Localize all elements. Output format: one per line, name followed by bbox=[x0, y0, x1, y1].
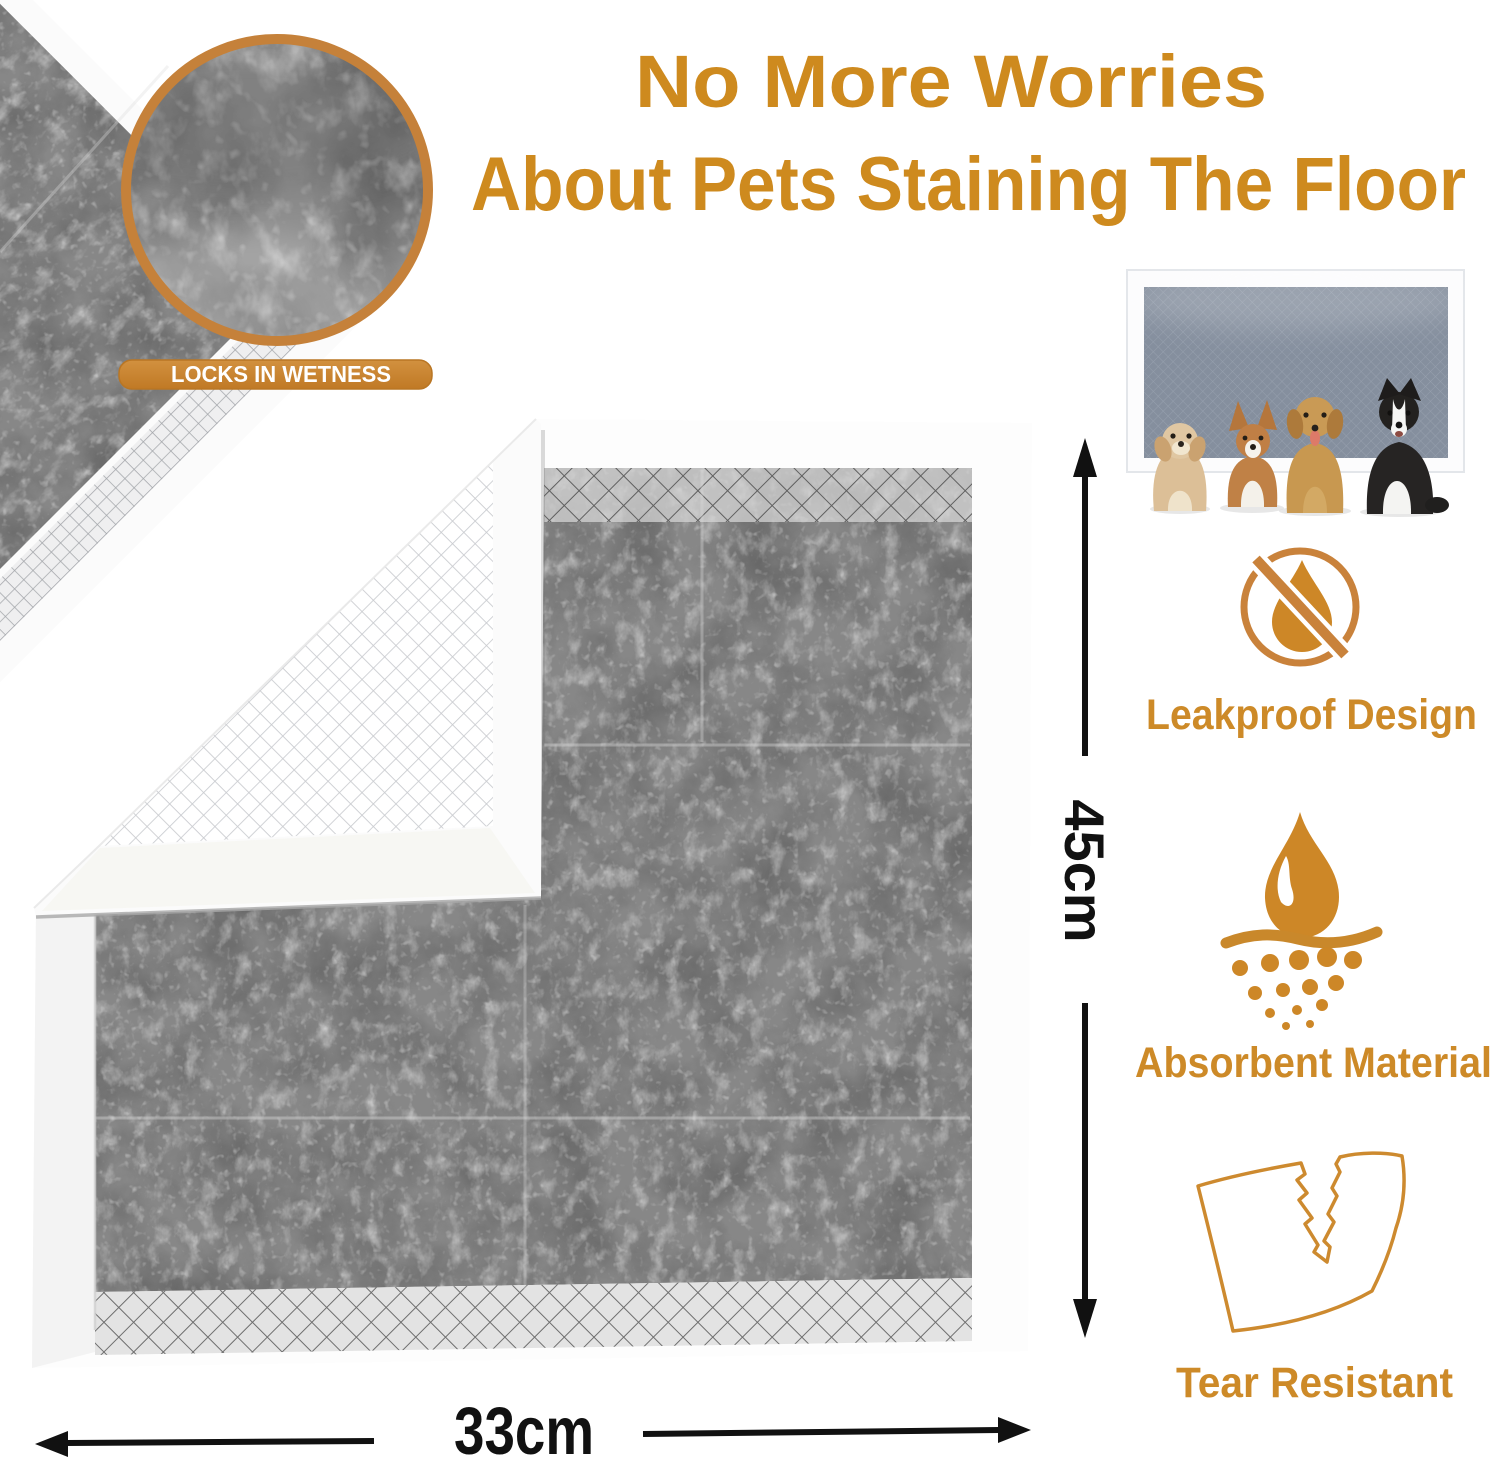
svg-text:45cm: 45cm bbox=[1053, 799, 1116, 942]
svg-text:33cm: 33cm bbox=[454, 1394, 594, 1460]
svg-text:Absorbent Material: Absorbent Material bbox=[1135, 1039, 1492, 1087]
svg-text:LOCKS IN WETNESS: LOCKS IN WETNESS bbox=[171, 361, 391, 387]
svg-text:Leakproof Design: Leakproof Design bbox=[1146, 691, 1477, 739]
svg-text:Tear Resistant: Tear Resistant bbox=[1176, 1359, 1453, 1407]
svg-text:No More Worries: No More Worries bbox=[635, 40, 1267, 123]
svg-text:About Pets Staining The Floor: About Pets Staining The Floor bbox=[471, 142, 1466, 227]
